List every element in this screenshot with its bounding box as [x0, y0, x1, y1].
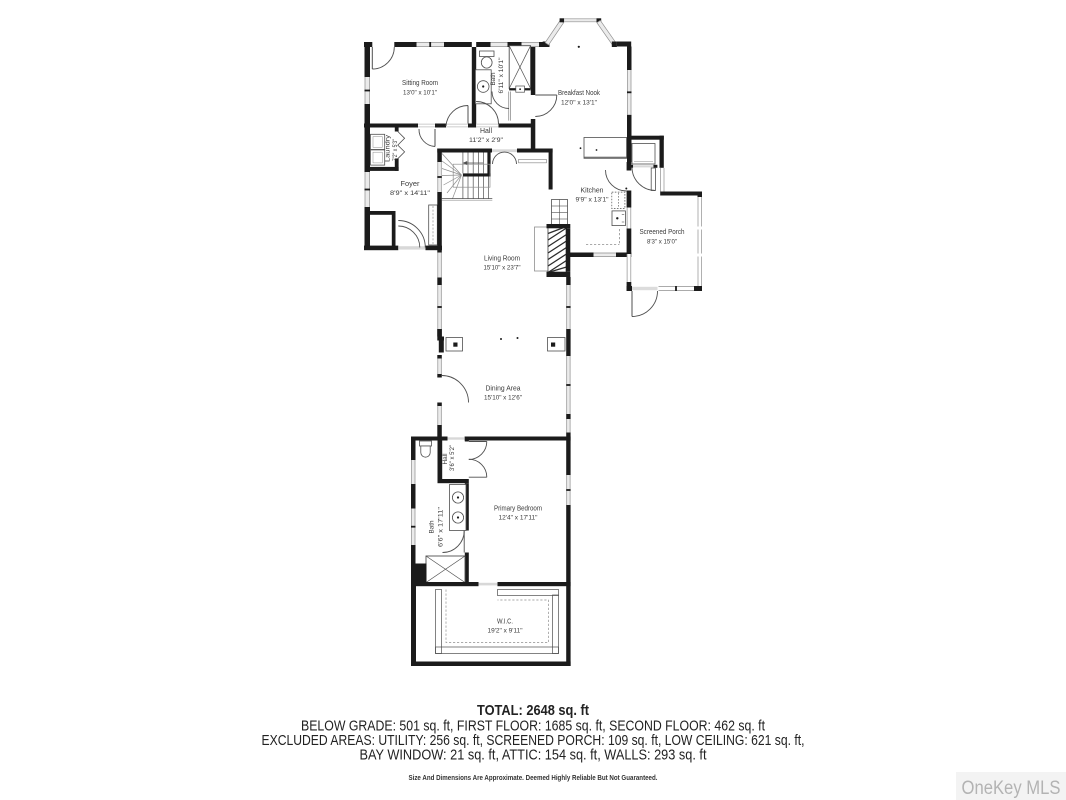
svg-text:12'0" x 13'1": 12'0" x 13'1" [561, 100, 597, 107]
svg-text:Bath: Bath [490, 72, 497, 85]
svg-text:12'4" x 17'11": 12'4" x 17'11" [499, 515, 538, 522]
svg-text:Sitting Room: Sitting Room [402, 80, 438, 87]
svg-text:Bath: Bath [429, 520, 436, 533]
svg-text:Hall: Hall [480, 128, 492, 135]
svg-text:Primary Bedroom: Primary Bedroom [494, 506, 542, 513]
svg-text:8'3" x 15'0": 8'3" x 15'0" [647, 239, 677, 246]
svg-text:6'6" x 17'11": 6'6" x 17'11" [439, 507, 445, 547]
svg-text:Breakfast Nook: Breakfast Nook [558, 90, 600, 97]
svg-text:Hall: Hall [442, 454, 449, 465]
svg-text:19'2" x 9'11": 19'2" x 9'11" [488, 628, 523, 635]
svg-text:9'9" x 13'1": 9'9" x 13'1" [576, 197, 609, 204]
svg-text:3'6" x 5'2": 3'6" x 5'2" [450, 445, 456, 471]
svg-text:8'9" x 14'11": 8'9" x 14'11" [390, 190, 430, 197]
svg-text:Size And Dimensions Are Approx: Size And Dimensions Are Approximate. Dee… [409, 773, 658, 782]
svg-text:W.I.C.: W.I.C. [497, 619, 513, 626]
svg-text:15'10" x 23'7": 15'10" x 23'7" [484, 265, 521, 272]
svg-text:Foyer: Foyer [401, 181, 421, 188]
svg-text:Dining Area: Dining Area [486, 386, 521, 393]
svg-text:Screened Porch: Screened Porch [640, 229, 685, 236]
svg-text:6'11" x 10'1": 6'11" x 10'1" [498, 58, 505, 94]
svg-text:15'10" x 12'6": 15'10" x 12'6" [484, 395, 522, 402]
svg-text:Living Room: Living Room [484, 256, 520, 263]
svg-text:BAY WINDOW: 21 sq. ft, ATTIC:: BAY WINDOW: 21 sq. ft, ATTIC: 154 sq. ft… [360, 748, 707, 764]
svg-text:TOTAL: 2648 sq. ft: TOTAL: 2648 sq. ft [477, 703, 589, 719]
svg-text:Kitchen: Kitchen [581, 188, 604, 195]
svg-text:OneKey MLS: OneKey MLS [962, 777, 1061, 799]
svg-text:7'2" x 5'3": 7'2" x 5'3" [393, 139, 399, 161]
svg-text:13'0" x 10'1": 13'0" x 10'1" [403, 90, 437, 97]
svg-text:11'2" x 2'9": 11'2" x 2'9" [469, 137, 503, 144]
svg-text:Laundry: Laundry [385, 134, 392, 162]
